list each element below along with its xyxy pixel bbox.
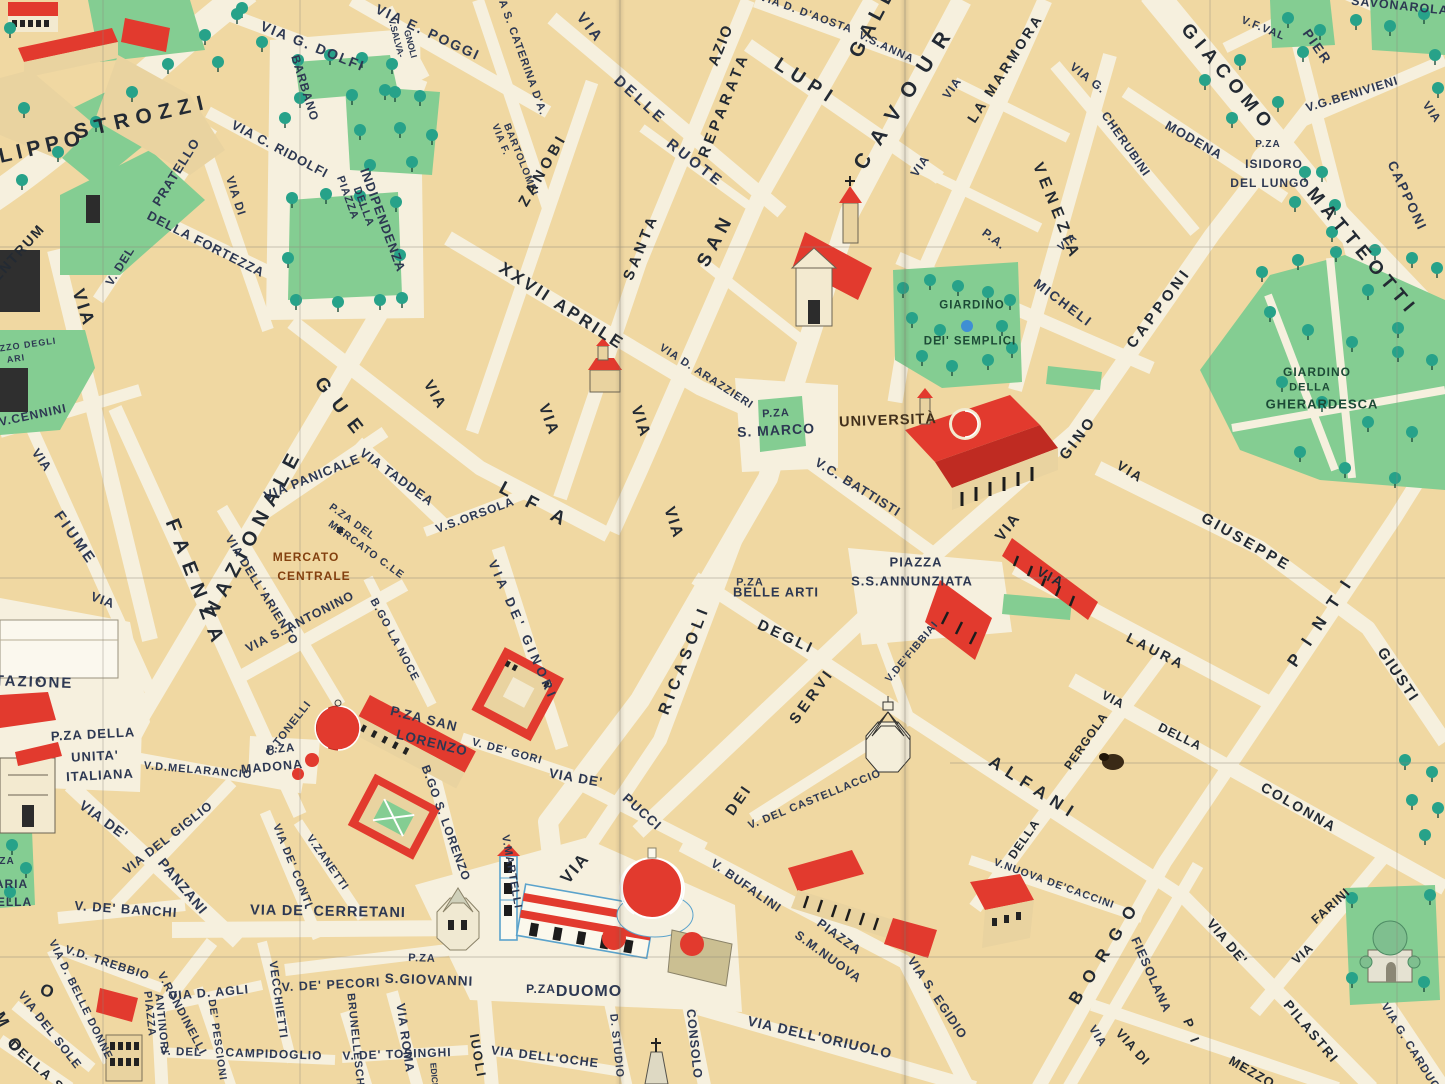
duomo-semidome <box>602 926 626 950</box>
dark-building <box>0 368 28 412</box>
pictorial-city-map: FILIPPOSTROZZICENTRUMZZO DEGLIARIVIA G. … <box>0 0 1445 1084</box>
map-canvas <box>0 0 1445 1084</box>
dark-building-2 <box>0 250 40 312</box>
map-dot <box>337 527 343 533</box>
duomo-semidome-2 <box>680 932 704 956</box>
pond-icon <box>961 320 973 332</box>
park-indipendenza-south <box>288 192 402 300</box>
park-piazza-san-marco <box>758 396 806 452</box>
campanile <box>497 844 520 940</box>
